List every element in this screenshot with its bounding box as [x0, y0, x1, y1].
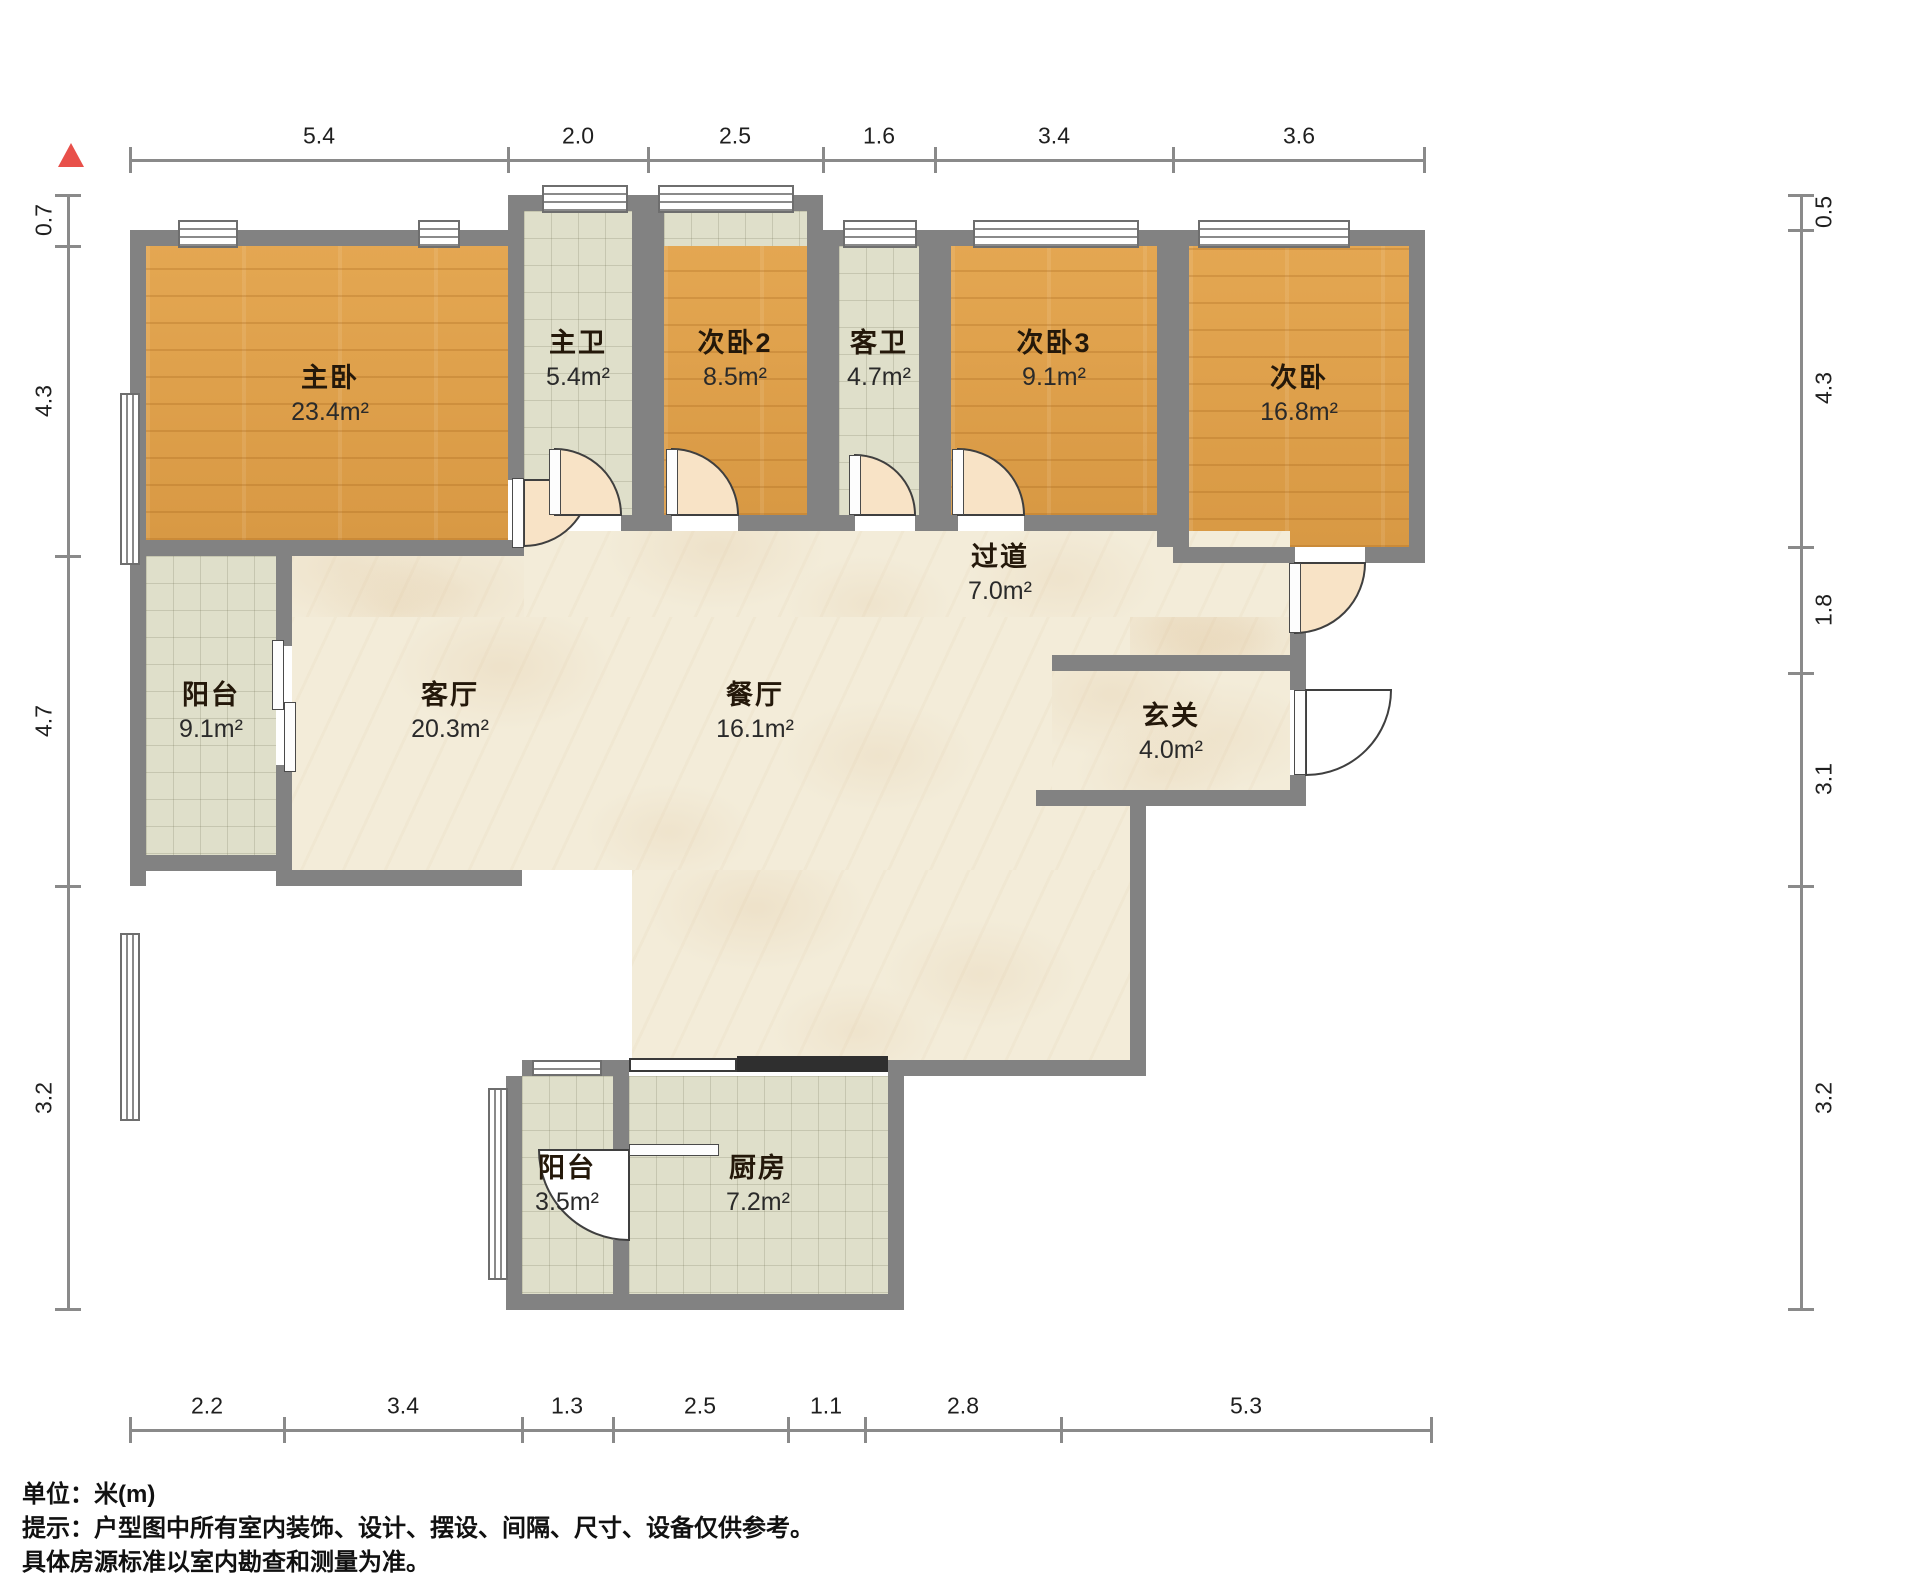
wall [506, 1076, 522, 1310]
wall [632, 211, 664, 531]
living-floor-upper [292, 556, 524, 617]
room-area: 23.4m² [291, 396, 369, 429]
wall [738, 515, 855, 531]
dim-tick [55, 1308, 81, 1311]
dim-value: 2.2 [191, 1393, 223, 1420]
room-label-dining: 餐厅 16.1m² [716, 678, 794, 746]
window [488, 1088, 508, 1280]
wall [524, 515, 555, 531]
dimension-line-right [1800, 195, 1803, 1310]
dim-tick [822, 147, 825, 173]
dim-value: 3.4 [1038, 123, 1070, 150]
room-label-guest-bath: 客卫 4.7m² [847, 326, 911, 394]
door-leaf [629, 1144, 719, 1156]
room-name: 阳台 [535, 1151, 599, 1186]
dim-value: 5.3 [1230, 1393, 1262, 1420]
kitchen-sliding-track [737, 1056, 888, 1072]
wall [130, 540, 524, 556]
wall [915, 515, 958, 531]
dim-tick [612, 1417, 615, 1443]
dim-tick [934, 147, 937, 173]
dim-tick [787, 1417, 790, 1443]
dining-floor-lower [632, 870, 1130, 1060]
room-area: 9.1m² [1016, 361, 1091, 394]
room-label-bedroom: 次卧 16.8m² [1260, 361, 1338, 429]
room-area: 8.5m² [697, 361, 772, 394]
dim-value: 3.6 [1283, 123, 1315, 150]
window [532, 1060, 602, 1076]
window [178, 220, 238, 248]
wall [613, 1240, 629, 1294]
wall [919, 246, 951, 531]
door-leaf [1294, 690, 1306, 775]
dim-tick [1060, 1417, 1063, 1443]
room-name: 过道 [968, 540, 1032, 575]
dim-tick [129, 147, 132, 173]
room-name: 主卧 [291, 361, 369, 396]
unit-label: 单位：米(m) [22, 1478, 814, 1512]
dim-value: 5.4 [303, 123, 335, 150]
room-name: 主卫 [546, 326, 610, 361]
dim-value: 4.3 [1811, 372, 1838, 404]
floor-plan: 主卧 23.4m² 主卫 5.4m² 次卧2 8.5m² 客卫 4.7m² 次卧… [0, 0, 1920, 1588]
dim-tick [129, 1417, 132, 1443]
wall [1173, 547, 1295, 563]
room-name: 阳台 [179, 678, 243, 713]
dim-tick [1172, 147, 1175, 173]
room-label-master: 主卧 23.4m² [291, 361, 369, 429]
compass-north-icon [58, 143, 84, 167]
dim-tick [521, 1417, 524, 1443]
dim-tick [1788, 546, 1814, 549]
door-leaf [952, 449, 964, 515]
room-area: 3.5m² [535, 1186, 599, 1219]
dim-tick [507, 147, 510, 173]
dim-value: 2.5 [719, 123, 751, 150]
window [120, 393, 140, 565]
entry-connector-floor [1130, 617, 1290, 655]
dim-tick [55, 555, 81, 558]
disclaimer-line2: 具体房源标准以室内勘查和测量为准。 [22, 1546, 814, 1580]
room-area: 7.2m² [726, 1186, 790, 1219]
window [1198, 220, 1350, 248]
dim-tick [1788, 672, 1814, 675]
room-name: 次卧 [1260, 361, 1338, 396]
door-arc-entrance [1306, 690, 1391, 775]
room-area: 9.1m² [179, 713, 243, 746]
disclaimer-line1: 提示：户型图中所有室内装饰、设计、摆设、间隔、尺寸、设备仅供参考。 [22, 1512, 814, 1546]
dim-value: 0.7 [31, 204, 58, 236]
wall [888, 1076, 904, 1294]
window [973, 220, 1139, 248]
footer-notes: 单位：米(m) 提示：户型图中所有室内装饰、设计、摆设、间隔、尺寸、设备仅供参考… [22, 1478, 814, 1580]
room-name: 客卫 [847, 326, 911, 361]
room-name: 玄关 [1139, 699, 1203, 734]
room-name: 次卧3 [1016, 326, 1091, 361]
wall [1365, 547, 1425, 563]
room-label-kitchen: 厨房 7.2m² [726, 1151, 790, 1219]
room-label-entry: 玄关 4.0m² [1139, 699, 1203, 767]
wall [508, 230, 524, 480]
door-leaf [512, 478, 524, 548]
room-area: 7.0m² [968, 575, 1032, 608]
room-name: 次卧2 [697, 326, 772, 361]
dim-tick [55, 194, 81, 197]
room-label-master-bath: 主卫 5.4m² [546, 326, 610, 394]
wall [276, 556, 292, 646]
dim-value: 1.8 [1811, 594, 1838, 626]
dimension-line-top [130, 159, 1425, 162]
room-bedroom2-sill-floor [664, 211, 807, 246]
wall [807, 230, 839, 531]
dimension-line-left [67, 195, 70, 1310]
dim-value: 2.0 [562, 123, 594, 150]
dim-value: 2.8 [947, 1393, 979, 1420]
dim-value: 3.2 [31, 1082, 58, 1114]
room-label-living: 客厅 20.3m² [411, 678, 489, 746]
dim-value: 3.2 [1811, 1082, 1838, 1114]
room-area: 4.7m² [847, 361, 911, 394]
wall [1157, 246, 1189, 547]
dim-value: 3.1 [1811, 763, 1838, 795]
wall [888, 1060, 1146, 1076]
window [658, 185, 794, 213]
wall [1024, 515, 1189, 531]
wall [1409, 246, 1425, 563]
door-leaf [549, 449, 561, 515]
room-area: 4.0m² [1139, 734, 1203, 767]
dim-tick [647, 147, 650, 173]
dim-value: 1.6 [863, 123, 895, 150]
room-name: 厨房 [726, 1151, 790, 1186]
wall [1130, 806, 1146, 1076]
room-area: 16.1m² [716, 713, 794, 746]
dim-tick [283, 1417, 286, 1443]
window [843, 220, 917, 248]
wall [613, 1076, 629, 1150]
room-area: 16.8m² [1260, 396, 1338, 429]
dim-tick [55, 245, 81, 248]
room-area: 5.4m² [546, 361, 610, 394]
dimension-line-bottom [130, 1429, 1432, 1432]
dim-value: 1.1 [810, 1393, 842, 1420]
dim-value: 2.5 [684, 1393, 716, 1420]
wall [1036, 790, 1306, 806]
room-label-balcony-small: 阳台 3.5m² [535, 1151, 599, 1219]
kitchen-threshold-sill [629, 1058, 737, 1072]
dim-value: 1.3 [551, 1393, 583, 1420]
wall [276, 765, 292, 855]
door-leaf [849, 455, 861, 515]
dim-tick [1788, 885, 1814, 888]
wall [1052, 655, 1290, 671]
dim-value: 4.7 [31, 705, 58, 737]
room-label-bedroom3: 次卧3 9.1m² [1016, 326, 1091, 394]
room-label-balcony-main: 阳台 9.1m² [179, 678, 243, 746]
dim-tick [1788, 229, 1814, 232]
sliding-door-panel [284, 702, 296, 772]
dim-tick [1430, 1417, 1433, 1443]
door-leaf [666, 449, 678, 515]
room-area: 20.3m² [411, 713, 489, 746]
dim-value: 3.4 [387, 1393, 419, 1420]
room-name: 客厅 [411, 678, 489, 713]
dim-tick [1423, 147, 1426, 173]
dim-tick [864, 1417, 867, 1443]
room-label-bedroom2: 次卧2 8.5m² [697, 326, 772, 394]
window [542, 185, 628, 213]
door-leaf [1289, 563, 1301, 633]
wall [506, 1294, 904, 1310]
dim-tick [1788, 1308, 1814, 1311]
wall [276, 870, 522, 886]
wall [621, 515, 672, 531]
dim-value: 4.3 [31, 385, 58, 417]
sliding-door-panel [272, 640, 284, 710]
room-label-hallway: 过道 7.0m² [968, 540, 1032, 608]
dim-value: 0.5 [1811, 196, 1838, 228]
room-name: 餐厅 [716, 678, 794, 713]
window [418, 220, 460, 248]
dim-tick [55, 885, 81, 888]
window [120, 933, 140, 1121]
wall [130, 855, 292, 871]
